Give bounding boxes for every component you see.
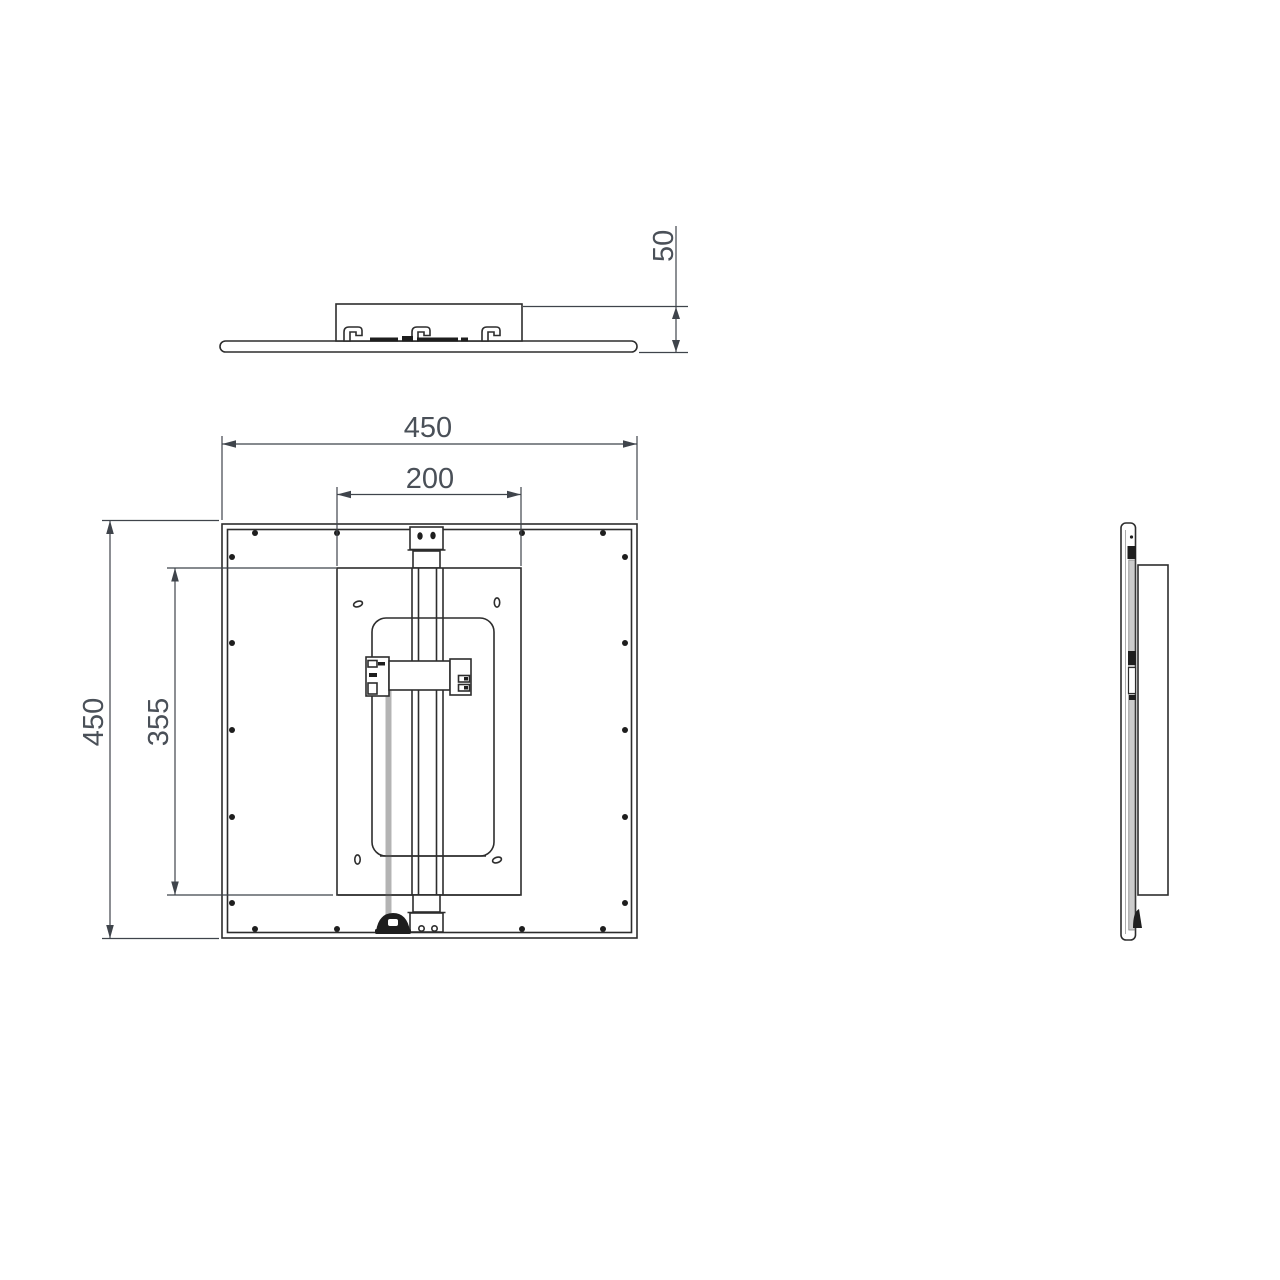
driver-left-mark-1 [378,662,385,666]
gasket-strip-2 [402,336,413,342]
side-center-mark [1129,695,1136,700]
driver-left-tab-top [368,661,377,668]
bottom-bracket [408,895,446,932]
gasket-strip-4 [461,338,468,342]
dimension-label-450-width: 450 [404,412,452,444]
side-center-clip [1128,651,1136,665]
dimension-50-height: 50 [523,226,688,353]
top-bracket-hole-left [417,532,422,539]
arrowhead-right [623,440,637,448]
plan-view: 450 200 450 355 [78,412,637,939]
driver-box [389,661,450,690]
side-top-clip [1128,546,1137,559]
driver-left-tab-bottom [368,683,377,694]
top-bracket-plate [410,527,443,550]
side-mounting-plate [1138,565,1168,895]
gland-slot [388,919,398,926]
slot-bottom-left [355,855,360,864]
bottom-bracket-stem [413,895,440,912]
side-view [1121,523,1168,940]
top-bracket-hole-right [430,532,435,539]
dimension-label-450-height: 450 [78,698,110,746]
arrowhead-left [222,440,236,448]
profile-view: 50 [220,226,688,353]
side-center-slot [1129,668,1136,694]
arrowhead-bottom [106,925,114,939]
arrowhead-up [672,307,680,319]
top-bracket [408,527,446,568]
dimension-label-200: 200 [406,463,454,495]
side-edge-strip [1129,560,1135,930]
slot-top-right [494,598,499,607]
dimension-label-50: 50 [648,230,680,262]
arrowhead-bottom [171,882,179,896]
gasket-strip-3 [417,338,458,342]
arrowhead-right [507,491,521,499]
top-bracket-stem [413,551,440,568]
driver-assembly [366,657,471,696]
arrowhead-top [106,521,114,535]
bottom-bracket-hole-right [432,926,437,931]
arrowhead-left [337,491,351,499]
panel-profile-outline [220,341,637,352]
gland-base [375,929,411,934]
technical-drawing-canvas: 50 [0,0,1280,1280]
driver-right-mark-1 [464,677,468,681]
panel-fixture-drawing: 50 [0,0,1280,1280]
arrowhead-top [171,568,179,582]
bottom-bracket-plate [410,913,443,932]
gasket-strip-1 [370,338,398,342]
bottom-bracket-hole-left [419,926,424,931]
driver-left-mark-2 [369,673,377,677]
arrowhead-down [672,340,680,352]
driver-right-mark-2 [464,686,468,690]
dimension-label-355: 355 [143,698,175,746]
side-top-screw [1130,535,1133,538]
